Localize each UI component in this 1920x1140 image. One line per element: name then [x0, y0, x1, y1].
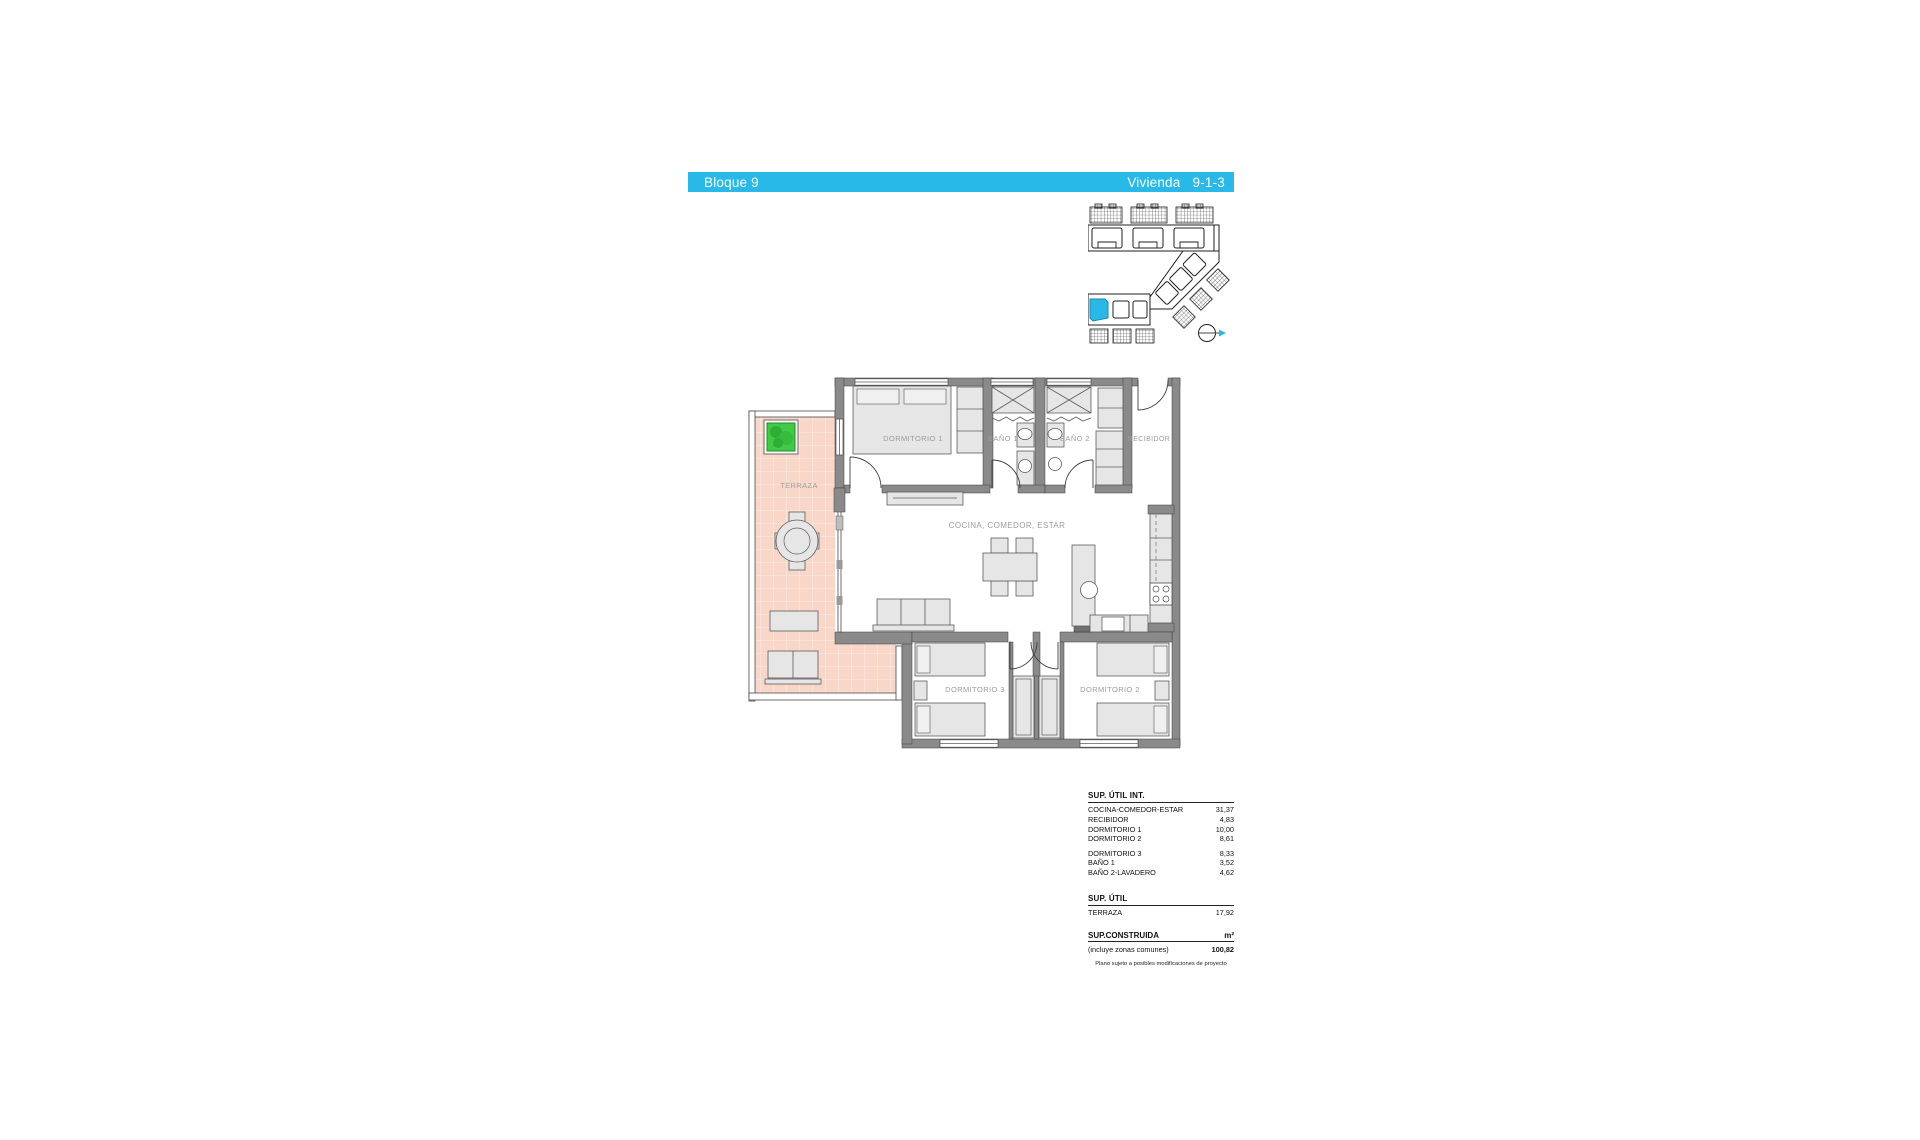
kitchen-counter [1150, 514, 1172, 623]
table-row: DORMITORIO 1 10,00 [1088, 825, 1234, 835]
room-label-dormitorio-2: DORMITORIO 2 [1080, 685, 1140, 694]
bano-2: BAÑO 2 [1047, 387, 1123, 488]
title-bar: Bloque 9 Vivienda 9-1-3 [688, 172, 1234, 192]
site-key-plan [1088, 202, 1230, 347]
section-sup-construida: SUP.CONSTRUIDA m² (incluye zonas comunes… [1088, 931, 1234, 955]
stove [1150, 583, 1172, 605]
sink [1018, 429, 1032, 440]
unit-number: 9-1-3 [1192, 175, 1225, 190]
table-row: DORMITORIO 3 8,33 [1088, 849, 1234, 859]
north-compass-icon [1199, 325, 1227, 342]
kitchen-peninsula [1072, 545, 1098, 626]
garden-plots-top [1090, 204, 1213, 223]
table-row: RECIBIDOR 4,83 [1088, 815, 1234, 825]
table-row: BAÑO 2-LAVADERO 4,62 [1088, 868, 1234, 878]
nightstand [1155, 681, 1169, 700]
section-title: SUP. ÚTIL [1088, 894, 1234, 906]
dormitorio-1: DORMITORIO 1 [850, 386, 983, 488]
closet [992, 387, 1034, 421]
building-top-row [1088, 225, 1219, 251]
kitchen-sink [1081, 582, 1098, 599]
section-title: SUP. ÚTIL INT. [1088, 791, 1234, 803]
floor-plan: TERRAZA [735, 368, 1185, 758]
nightstand [914, 681, 927, 700]
section-sup-util: SUP. ÚTIL TERRAZA 17,92 [1088, 894, 1234, 918]
garden-plots-bottom [1090, 329, 1154, 343]
room-label-dormitorio-1: DORMITORIO 1 [883, 434, 943, 443]
room-label-bano-1: BAÑO 1 [988, 434, 1018, 443]
room-label-recibidor: RECIBIDOR [1128, 436, 1171, 443]
toilet [1049, 458, 1062, 471]
table-row: (incluye zonas comunes) 100,82 [1088, 945, 1234, 955]
terraza-area: TERRAZA [749, 411, 902, 701]
unit-title: Vivienda 9-1-3 [1127, 175, 1225, 190]
bano-1: BAÑO 1 [988, 387, 1034, 488]
table-row: DORMITORIO 2 8,61 [1088, 834, 1234, 844]
laundry-cabinets [1096, 388, 1123, 485]
closet [1047, 387, 1091, 421]
toilet [1019, 460, 1032, 473]
room-label-dormitorio-3: DORMITORIO 3 [945, 685, 1005, 694]
block-title: Bloque 9 [704, 175, 759, 190]
section-sup-util-int: SUP. ÚTIL INT. COCINA-COMEDOR-ESTAR 31,3… [1088, 791, 1234, 878]
kitchen-bottom-counter [1090, 615, 1148, 632]
living-kitchen: COCINA, COMEDOR, ESTAR [873, 492, 1172, 669]
table-row: BAÑO 1 3,52 [1088, 858, 1234, 868]
disclaimer-note: Plano sujeto a posibles modificaciones d… [1088, 961, 1234, 967]
entry-door-arc [1138, 380, 1168, 410]
vivienda-label: Vivienda [1127, 175, 1180, 190]
sofa [873, 599, 954, 631]
room-label-bano-2: BAÑO 2 [1060, 434, 1090, 443]
dining-table-set [983, 538, 1037, 596]
building-bottom-row [1088, 294, 1150, 325]
dormitorio-3: DORMITORIO 3 [914, 643, 1005, 736]
terrace-bench [765, 651, 821, 684]
wardrobe [957, 387, 983, 453]
terrace-glass-door [834, 488, 845, 632]
table-row: COCINA-COMEDOR-ESTAR 31,37 [1088, 805, 1234, 815]
surface-table: SUP. ÚTIL INT. COCINA-COMEDOR-ESTAR 31,3… [1088, 791, 1234, 967]
plant-icon [764, 420, 798, 454]
tv-sideboard [887, 492, 963, 505]
table-row: TERRAZA 17,92 [1088, 908, 1234, 918]
room-label-cocina: COCINA, COMEDOR, ESTAR [949, 521, 1066, 530]
recibidor: RECIBIDOR [1128, 380, 1171, 443]
highlighted-unit [1090, 299, 1108, 321]
dormitorio-2: DORMITORIO 2 [1080, 643, 1169, 736]
section-title: SUP.CONSTRUIDA m² [1088, 931, 1234, 943]
washing-machine [1102, 617, 1124, 631]
plan-sheet: Bloque 9 Vivienda 9-1-3 [0, 0, 1920, 1140]
room-label-terraza: TERRAZA [780, 481, 818, 490]
terrace-low-table [770, 611, 818, 631]
